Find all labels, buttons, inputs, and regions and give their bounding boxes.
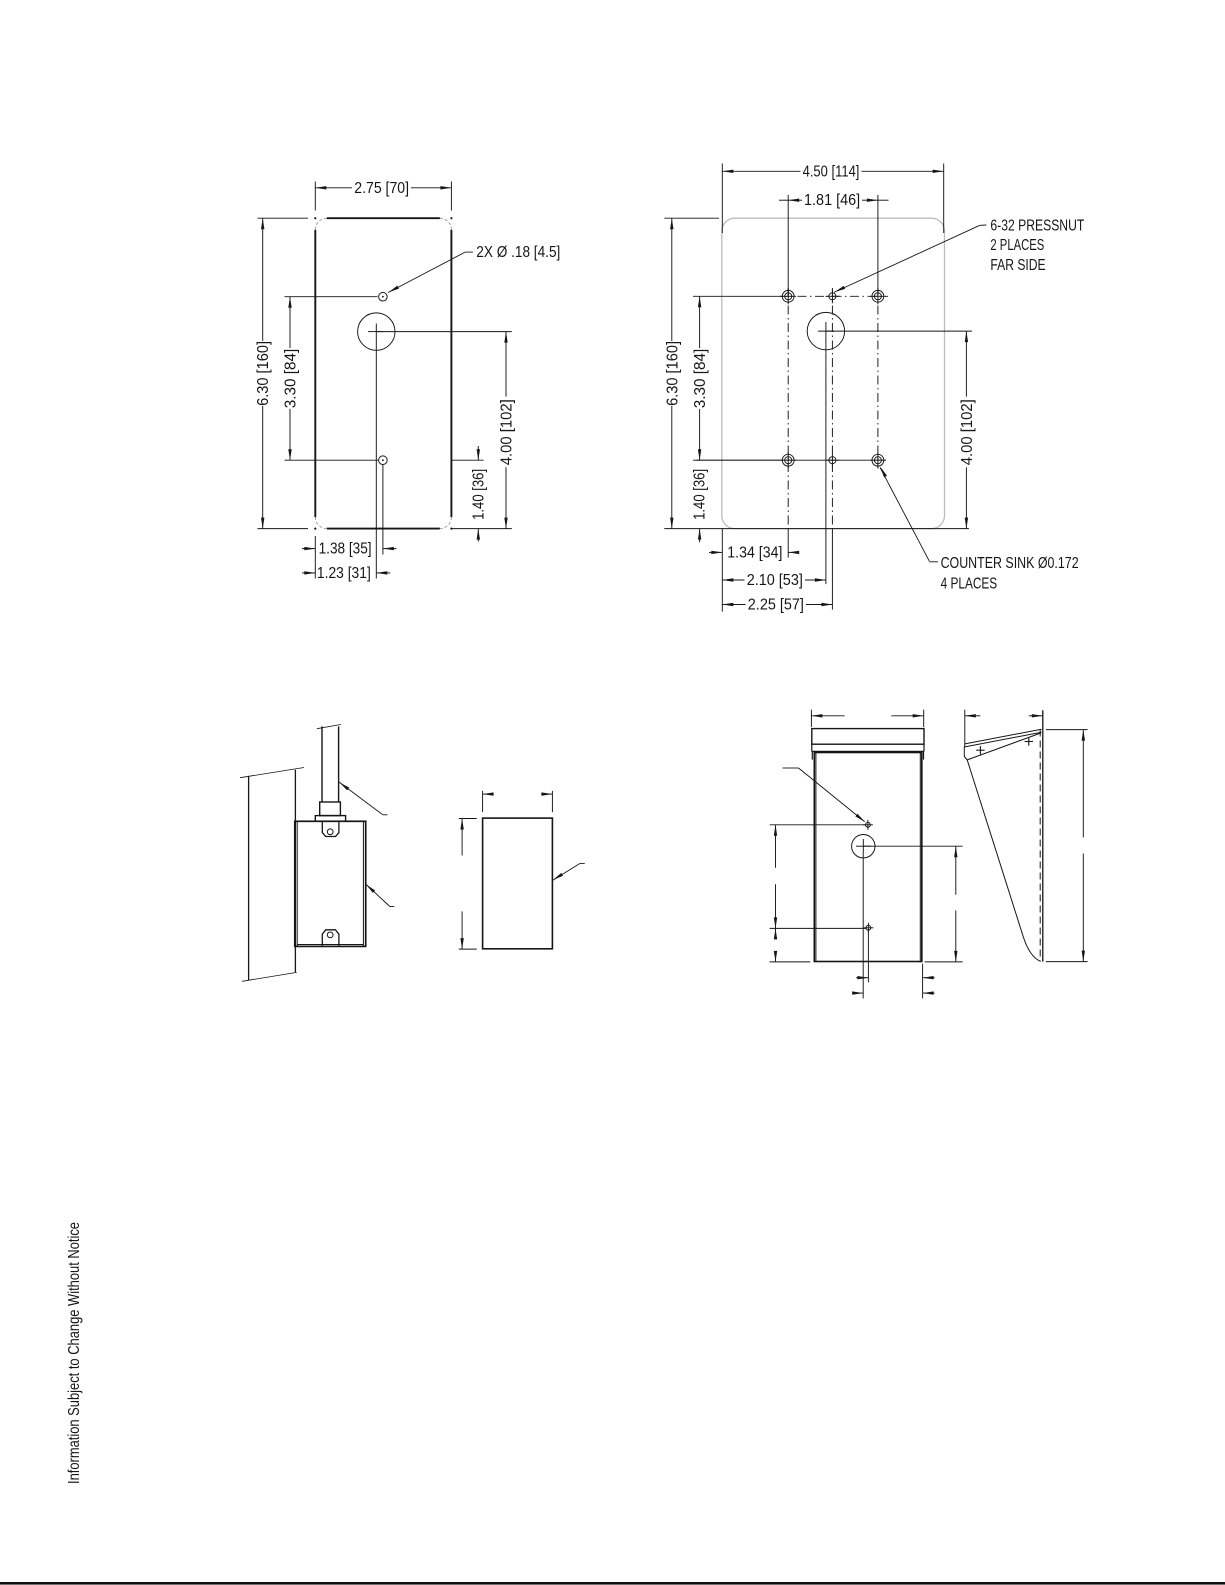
svg-text:1.34 [34]: 1.34 [34] — [727, 544, 782, 561]
svg-text:4.00 [102]: 4.00 [102] — [959, 399, 976, 465]
svg-text:COUNTER SINK Ø0.172: COUNTER SINK Ø0.172 — [941, 555, 1079, 572]
svg-text:6.30 [160]: 6.30 [160] — [255, 341, 272, 406]
svg-text:6-32 PRESSNUT: 6-32 PRESSNUT — [990, 218, 1084, 235]
svg-text:4.00 [102]: 4.00 [102] — [499, 399, 516, 465]
svg-text:2.10 [53]: 2.10 [53] — [747, 572, 803, 589]
svg-text:1.38 [35]: 1.38 [35] — [319, 541, 372, 558]
svg-text:1.40 [36]: 1.40 [36] — [692, 469, 709, 520]
svg-text:1.81 [46]: 1.81 [46] — [804, 192, 860, 209]
svg-text:Information Subject to Change: Information Subject to Change Without No… — [66, 1222, 83, 1484]
svg-text:6.30 [160]: 6.30 [160] — [664, 341, 681, 406]
svg-text:2 PLACES: 2 PLACES — [990, 237, 1044, 254]
svg-text:4 PLACES: 4 PLACES — [941, 575, 998, 592]
svg-text:1.23 [31]: 1.23 [31] — [317, 565, 371, 582]
svg-text:2X Ø .18 [4.5]: 2X Ø .18 [4.5] — [476, 244, 560, 261]
svg-text:FAR SIDE: FAR SIDE — [990, 257, 1045, 274]
svg-text:3.30 [84]: 3.30 [84] — [692, 349, 709, 409]
svg-text:3.30 [84]: 3.30 [84] — [283, 349, 300, 409]
svg-text:1.40 [36]: 1.40 [36] — [470, 469, 487, 520]
svg-text:4.50 [114]: 4.50 [114] — [803, 163, 860, 180]
svg-text:2.75 [70]: 2.75 [70] — [354, 180, 409, 197]
svg-text:2.25 [57]: 2.25 [57] — [748, 597, 804, 614]
